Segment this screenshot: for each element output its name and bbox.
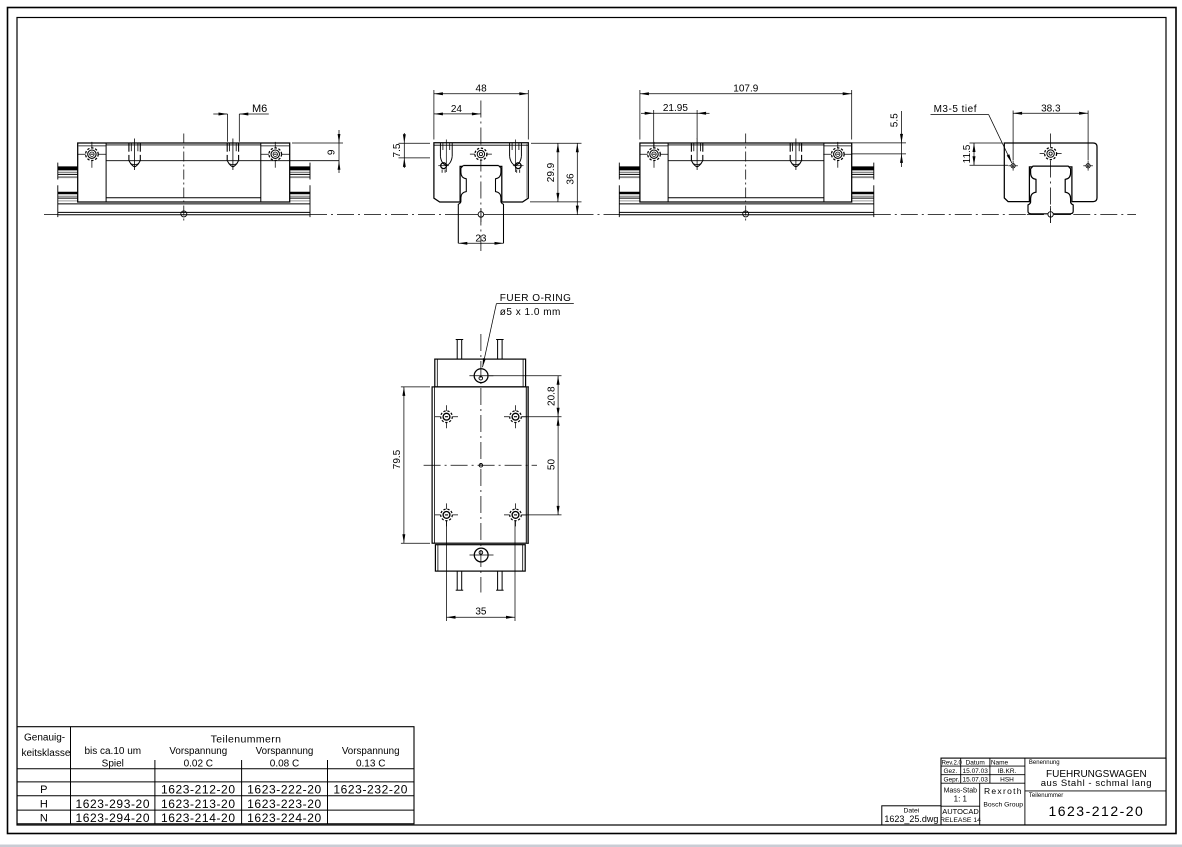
- svg-text:11.5: 11.5: [962, 144, 973, 163]
- svg-text:48: 48: [476, 84, 488, 95]
- svg-text:1623-214-20: 1623-214-20: [161, 811, 236, 825]
- svg-text:38.3: 38.3: [1041, 104, 1061, 115]
- svg-text:IB.KR.: IB.KR.: [998, 768, 1017, 775]
- svg-text:29.9: 29.9: [546, 162, 557, 182]
- svg-text:FUER O-RING: FUER O-RING: [500, 293, 572, 304]
- svg-text:1623-232-20: 1623-232-20: [333, 783, 408, 797]
- svg-text:Name: Name: [991, 760, 1009, 767]
- svg-text:1623-294-20: 1623-294-20: [75, 811, 150, 825]
- svg-text:ø5 x 1.0 mm: ø5 x 1.0 mm: [500, 307, 561, 318]
- svg-text:Teilenummer: Teilenummer: [1029, 793, 1063, 799]
- svg-text:Teilenummern: Teilenummern: [211, 733, 282, 745]
- svg-text:5.5: 5.5: [889, 113, 900, 127]
- svg-text:9: 9: [327, 149, 338, 155]
- svg-text:1623-224-20: 1623-224-20: [247, 811, 322, 825]
- svg-text:79.5: 79.5: [392, 449, 403, 469]
- svg-text:N: N: [40, 813, 48, 825]
- svg-text:1623-223-20: 1623-223-20: [247, 797, 322, 811]
- svg-text:Mass-Stab: Mass-Stab: [944, 787, 978, 794]
- svg-text:1623-222-20: 1623-222-20: [247, 783, 322, 797]
- svg-text:0.08 C: 0.08 C: [270, 759, 299, 770]
- svg-text:7.5: 7.5: [392, 143, 403, 157]
- svg-text:15.07.03: 15.07.03: [963, 777, 989, 784]
- svg-text:Vorspannung: Vorspannung: [342, 746, 400, 757]
- svg-text:Spiel: Spiel: [102, 759, 124, 770]
- svg-text:Benennung: Benennung: [1029, 760, 1060, 766]
- svg-text:23: 23: [475, 233, 487, 244]
- svg-text:0.13 C: 0.13 C: [356, 759, 385, 770]
- svg-text:Genauig-: Genauig-: [24, 733, 65, 744]
- svg-text:1623-213-20: 1623-213-20: [161, 797, 236, 811]
- svg-text:15.07.03: 15.07.03: [963, 768, 989, 775]
- svg-text:50: 50: [546, 459, 557, 471]
- svg-text:Vorspannung: Vorspannung: [169, 746, 227, 757]
- svg-text:Rev.2.0: Rev.2.0: [942, 761, 963, 767]
- svg-text:Gez.: Gez.: [944, 768, 958, 775]
- svg-text:24: 24: [451, 104, 463, 115]
- svg-text:35: 35: [475, 607, 487, 618]
- svg-text:H: H: [40, 799, 48, 811]
- svg-text:Vorspannung: Vorspannung: [256, 746, 314, 757]
- svg-text:Datum: Datum: [966, 760, 985, 767]
- svg-text:Gepr.: Gepr.: [944, 777, 960, 784]
- svg-text:RELEASE 14: RELEASE 14: [940, 817, 981, 824]
- svg-text:Bosch Group: Bosch Group: [983, 802, 1023, 809]
- svg-text:Rexroth: Rexroth: [984, 786, 1023, 796]
- svg-text:P: P: [40, 784, 47, 796]
- svg-text:bis ca.10 um: bis ca.10 um: [84, 746, 141, 757]
- svg-text:HSH: HSH: [1000, 777, 1014, 784]
- svg-text:AUTOCAD: AUTOCAD: [942, 807, 979, 816]
- svg-text:1623-212-20: 1623-212-20: [161, 783, 236, 797]
- svg-text:20.8: 20.8: [546, 386, 557, 406]
- svg-text:keitsklasse: keitsklasse: [22, 748, 71, 759]
- svg-text:1623_25.dwg: 1623_25.dwg: [884, 814, 938, 824]
- svg-text:M3-5 tief: M3-5 tief: [934, 104, 977, 115]
- svg-text:0.02 C: 0.02 C: [184, 759, 213, 770]
- svg-text:M6: M6: [252, 103, 267, 115]
- svg-text:1623-293-20: 1623-293-20: [75, 797, 150, 811]
- svg-text:36: 36: [566, 173, 577, 185]
- svg-text:21.95: 21.95: [663, 103, 688, 114]
- svg-text:1623-212-20: 1623-212-20: [1048, 803, 1144, 819]
- svg-text:1: 1: 1: 1: [954, 795, 968, 804]
- svg-text:aus Stahl - schmal lang: aus Stahl - schmal lang: [1041, 778, 1152, 789]
- svg-text:107.9: 107.9: [733, 84, 758, 95]
